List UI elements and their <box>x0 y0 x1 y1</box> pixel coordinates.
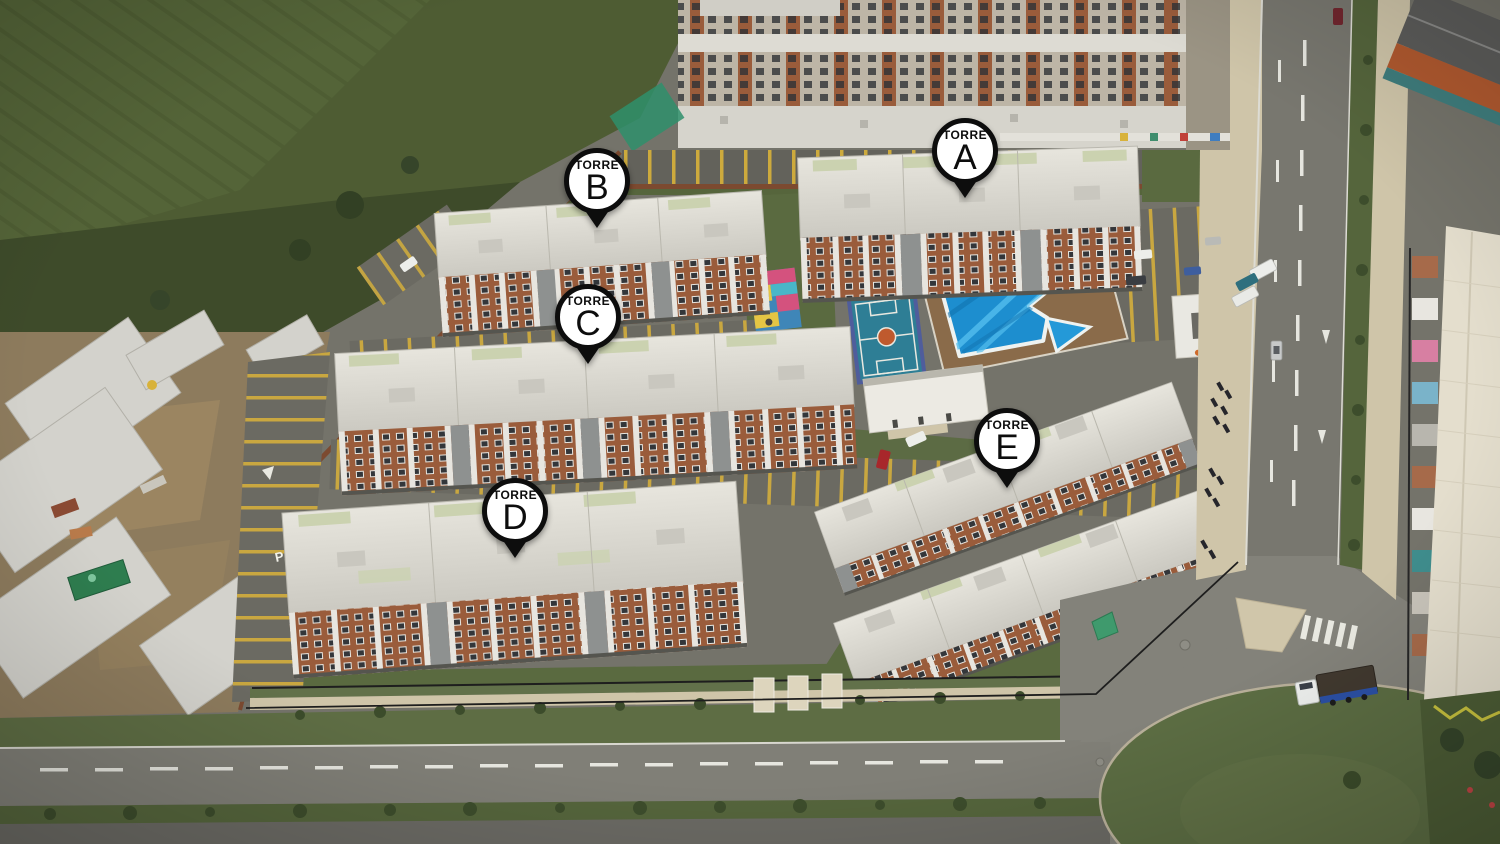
torre-pin-e[interactable]: TORRE E <box>974 408 1040 488</box>
torre-pin-d-tail <box>502 539 528 558</box>
torre-pin-a-bubble: TORRE A <box>932 118 998 184</box>
vignette <box>0 0 1500 844</box>
torre-pin-e-letter: E <box>995 430 1018 465</box>
torre-pin-c-tail <box>575 345 601 364</box>
torre-pin-c-bubble: TORRE C <box>555 284 621 350</box>
torre-pin-c-letter: C <box>575 306 600 341</box>
torre-pin-b-letter: B <box>585 170 608 205</box>
scene-canvas: PARE <box>0 0 1500 844</box>
torre-pin-a-letter: A <box>953 140 976 175</box>
torre-pin-a-tail <box>952 179 978 198</box>
torre-pin-c[interactable]: TORRE C <box>555 284 621 364</box>
torre-pin-b-bubble: TORRE B <box>564 148 630 214</box>
torre-pin-d-bubble: TORRE D <box>482 478 548 544</box>
aerial-site-photo: PARE <box>0 0 1500 844</box>
torre-pin-e-bubble: TORRE E <box>974 408 1040 474</box>
torre-pin-a[interactable]: TORRE A <box>932 118 998 198</box>
torre-pin-e-tail <box>994 469 1020 488</box>
torre-pin-d[interactable]: TORRE D <box>482 478 548 558</box>
torre-pin-b[interactable]: TORRE B <box>564 148 630 228</box>
torre-pin-d-letter: D <box>502 500 527 535</box>
torre-pin-b-tail <box>584 209 610 228</box>
